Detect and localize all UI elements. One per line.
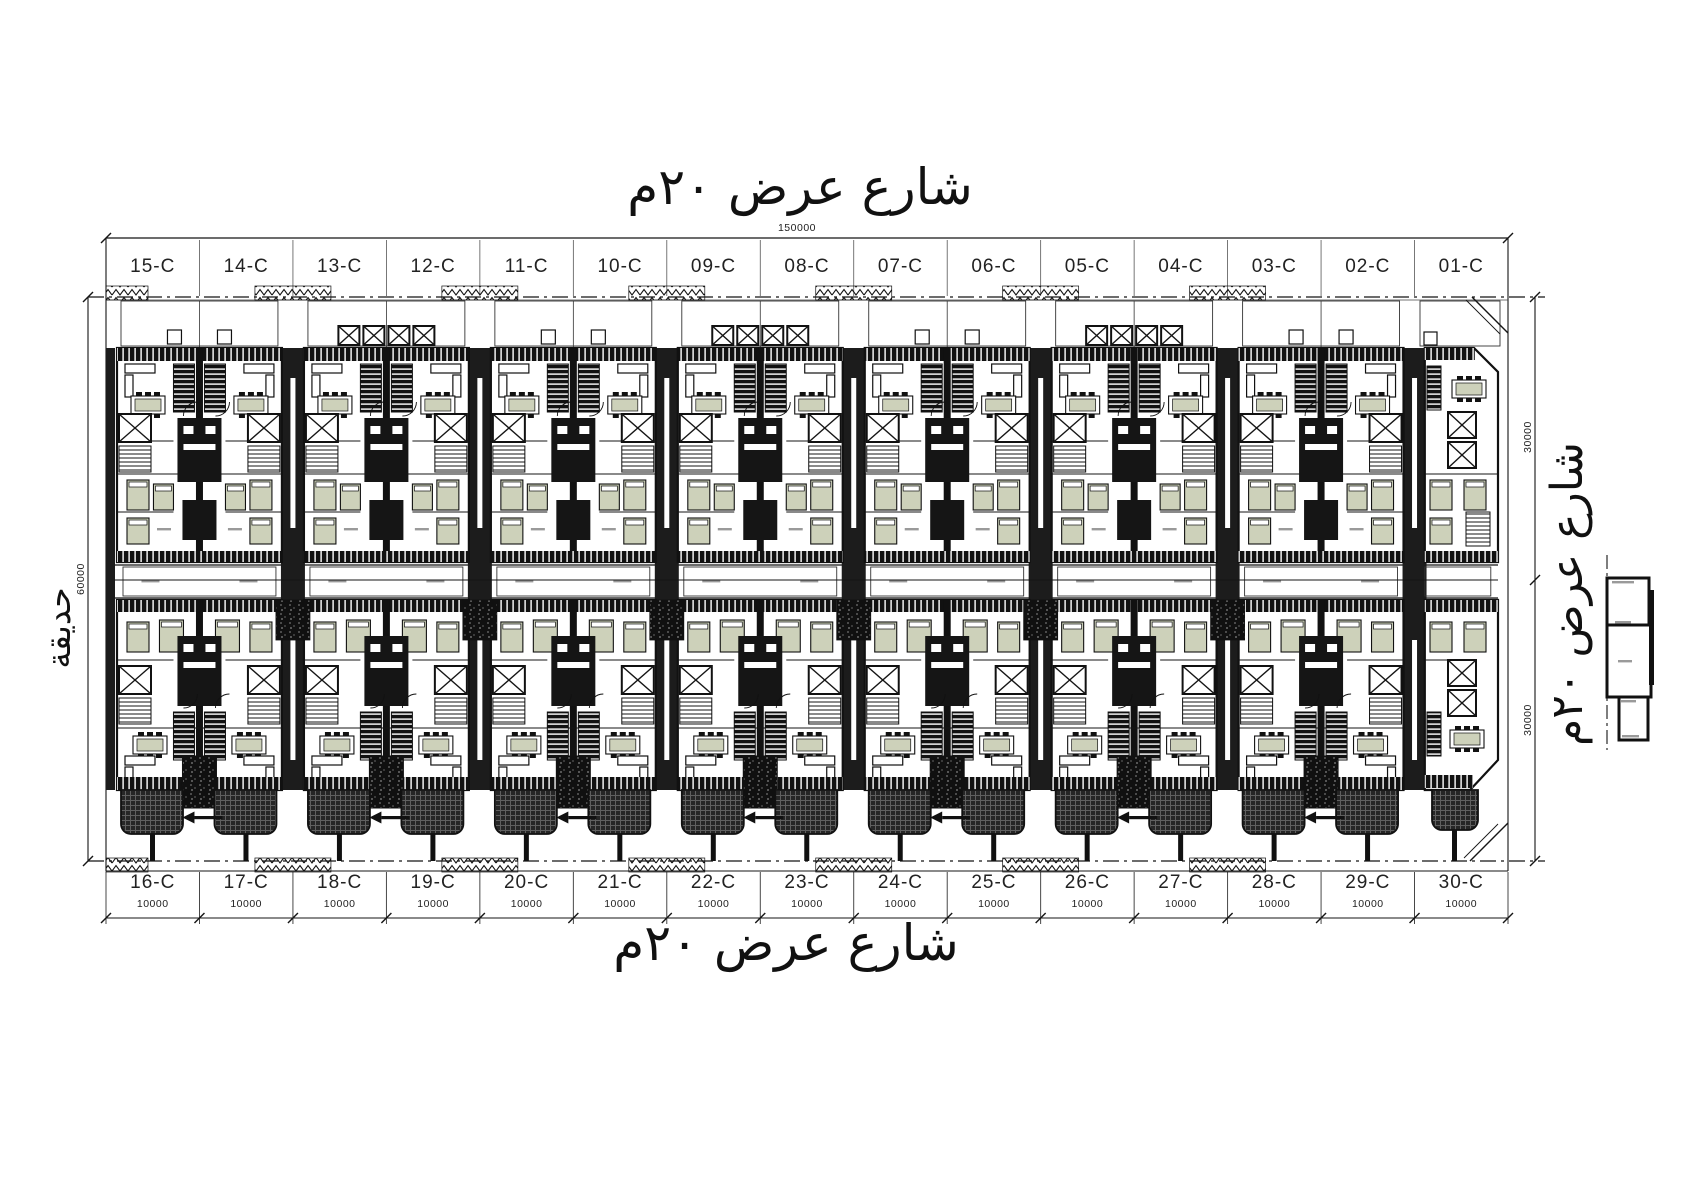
unit-label-22-C: 22-C [667, 872, 760, 894]
unit-label-24-C: 24-C [854, 872, 947, 894]
bottom-dim-1: 10000 [106, 898, 199, 910]
lower-block-3 [491, 567, 656, 861]
unit-label-01-C: 01-C [1415, 256, 1508, 278]
unit-label-10-C: 10-C [573, 256, 666, 278]
bottom-dim-2: 10000 [199, 898, 292, 910]
street-label-top: شارع عرض ٢٠م [520, 158, 1080, 216]
unit-label-11-C: 11-C [480, 256, 573, 278]
unit-label-08-C: 08-C [760, 256, 853, 278]
bottom-dim-10: 10000 [947, 898, 1040, 910]
unit-label-28-C: 28-C [1228, 872, 1321, 894]
unit-label-27-C: 27-C [1134, 872, 1227, 894]
dim-overall-width: 150000 [737, 222, 857, 234]
bottom-dim-7: 10000 [667, 898, 760, 910]
unit-label-14-C: 14-C [199, 256, 292, 278]
dim-upper-plot-depth: 30000 [1522, 375, 1536, 499]
bottom-dim-14: 10000 [1321, 898, 1414, 910]
bottom-dim-15: 10000 [1415, 898, 1508, 910]
street-label-right: شارع عرض ٢٠م [1542, 446, 1594, 746]
lower-block-2 [304, 567, 469, 861]
unit-label-21-C: 21-C [573, 872, 666, 894]
unit-label-16-C: 16-C [106, 872, 199, 894]
unit-label-19-C: 19-C [386, 872, 479, 894]
unit-label-04-C: 04-C [1134, 256, 1227, 278]
lower-block-7 [1239, 567, 1404, 861]
unit-label-26-C: 26-C [1041, 872, 1134, 894]
site-plan-sheet: شارع عرض ٢٠م شارع عرض ٢٠م شارع عرض ٢٠م ح… [0, 0, 1684, 1190]
lower-block-5 [865, 567, 1030, 861]
unit-label-20-C: 20-C [480, 872, 573, 894]
unit-label-23-C: 23-C [760, 872, 853, 894]
street-label-bottom: شارع عرض ٢٠م [506, 914, 1066, 972]
dim-overall-depth: 60000 [75, 517, 89, 641]
lower-block-1 [117, 567, 282, 861]
unit-label-25-C: 25-C [947, 872, 1040, 894]
key-plan [1607, 555, 1654, 750]
unit-label-06-C: 06-C [947, 256, 1040, 278]
unit-label-18-C: 18-C [293, 872, 386, 894]
end-unit-01C [1420, 301, 1500, 562]
unit-label-17-C: 17-C [199, 872, 292, 894]
bottom-dim-4: 10000 [386, 898, 479, 910]
unit-label-07-C: 07-C [854, 256, 947, 278]
bottom-dim-5: 10000 [480, 898, 573, 910]
bottom-dim-12: 10000 [1134, 898, 1227, 910]
bottom-dim-11: 10000 [1041, 898, 1134, 910]
dim-lower-plot-depth: 30000 [1522, 658, 1536, 782]
unit-label-12-C: 12-C [386, 256, 479, 278]
end-unit-30C [1425, 567, 1498, 861]
bottom-dim-9: 10000 [854, 898, 947, 910]
bottom-dim-3: 10000 [293, 898, 386, 910]
lower-block-4 [678, 567, 843, 861]
unit-label-13-C: 13-C [293, 256, 386, 278]
unit-label-05-C: 05-C [1041, 256, 1134, 278]
unit-label-03-C: 03-C [1228, 256, 1321, 278]
unit-label-09-C: 09-C [667, 256, 760, 278]
bottom-dim-13: 10000 [1228, 898, 1321, 910]
lower-block-6 [1052, 567, 1217, 861]
bottom-dim-6: 10000 [573, 898, 666, 910]
unit-label-02-C: 02-C [1321, 256, 1414, 278]
unit-label-30-C: 30-C [1415, 872, 1508, 894]
unit-label-29-C: 29-C [1321, 872, 1414, 894]
unit-label-15-C: 15-C [106, 256, 199, 278]
bottom-dim-8: 10000 [760, 898, 853, 910]
